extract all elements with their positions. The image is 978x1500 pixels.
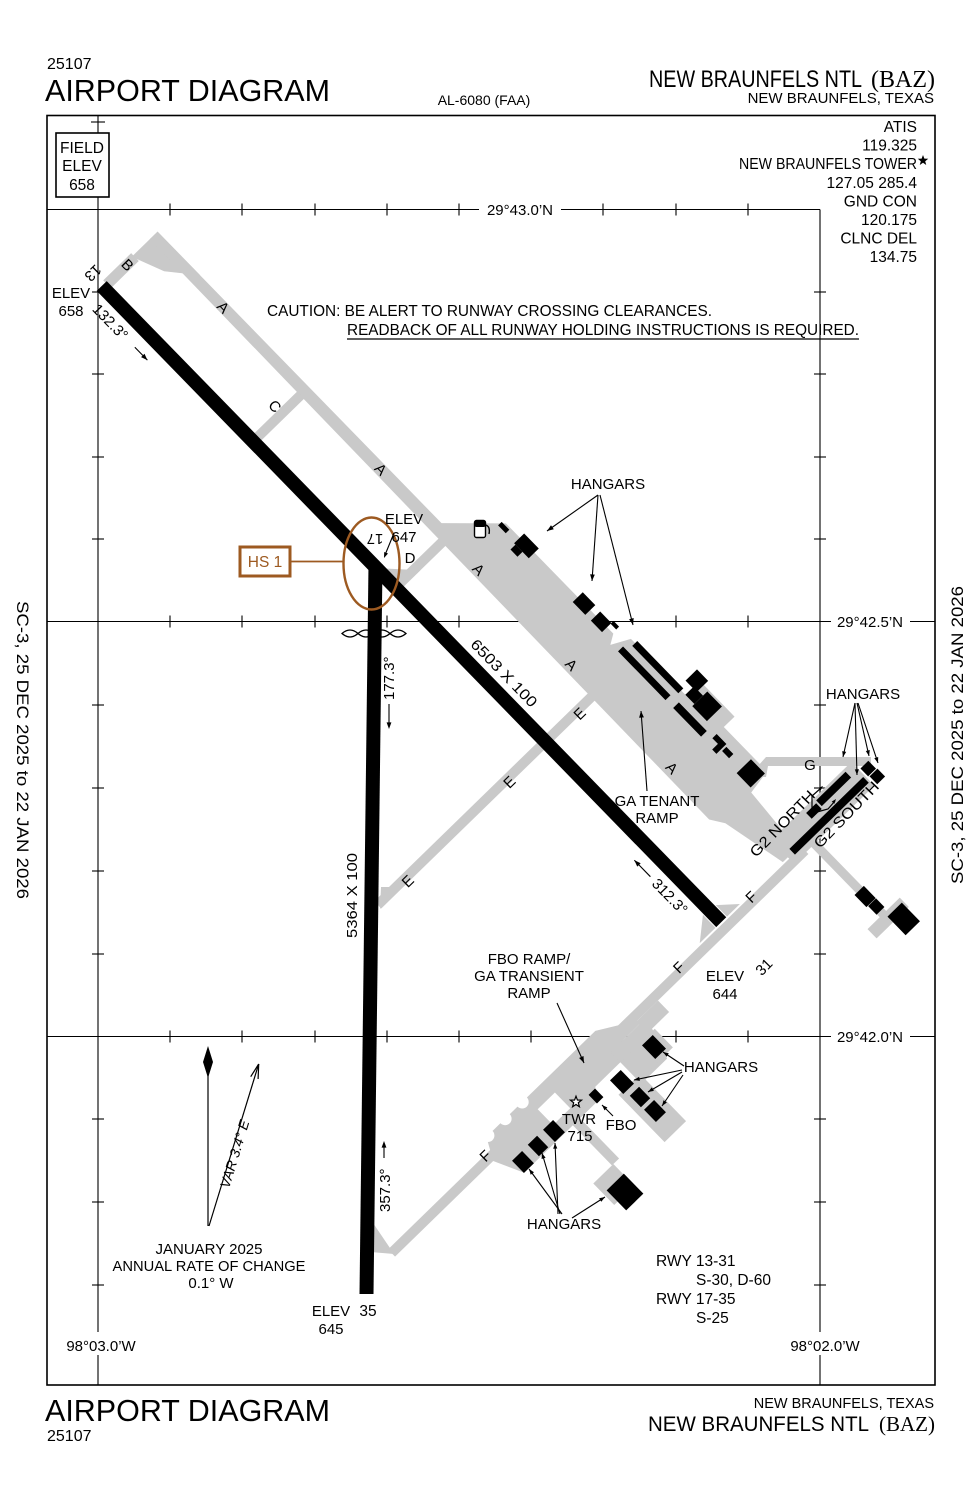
- svg-text:ELEV: ELEV: [706, 968, 744, 985]
- svg-text:HANGARS: HANGARS: [571, 476, 645, 493]
- svg-text:NEW BRAUNFELS, TEXAS: NEW BRAUNFELS, TEXAS: [748, 90, 934, 107]
- svg-text:645: 645: [318, 1321, 343, 1338]
- svg-text:25107: 25107: [47, 1428, 92, 1445]
- svg-text:TWR: TWR: [562, 1111, 596, 1128]
- svg-text:S-30, D-60: S-30, D-60: [696, 1272, 771, 1289]
- svg-text:AL-6080 (FAA): AL-6080 (FAA): [438, 92, 531, 108]
- svg-text:RAMP: RAMP: [507, 985, 550, 1002]
- svg-text:ELEV: ELEV: [312, 1303, 350, 1320]
- svg-text:AIRPORT DIAGRAM: AIRPORT DIAGRAM: [45, 1393, 330, 1428]
- svg-text:FBO: FBO: [606, 1117, 637, 1134]
- svg-text:HS 1: HS 1: [248, 554, 282, 571]
- svg-text:644: 644: [712, 986, 737, 1003]
- svg-text:NEW BRAUNFELS, TEXAS: NEW BRAUNFELS, TEXAS: [754, 1396, 934, 1412]
- svg-text:17: 17: [367, 530, 384, 547]
- svg-text:FIELD: FIELD: [60, 140, 104, 157]
- svg-text:CLNC DEL: CLNC DEL: [840, 231, 917, 248]
- svg-text:25107: 25107: [47, 56, 92, 73]
- svg-text:RAMP: RAMP: [635, 810, 678, 827]
- svg-text:HANGARS: HANGARS: [527, 1216, 601, 1233]
- svg-text:715: 715: [567, 1128, 592, 1145]
- svg-text:177.3°: 177.3°: [381, 656, 398, 700]
- svg-text:357.3°: 357.3°: [377, 1168, 394, 1212]
- svg-text:RWY 13-31: RWY 13-31: [656, 1253, 736, 1270]
- svg-text:29°42.0’N: 29°42.0’N: [837, 1029, 903, 1046]
- svg-text:S-25: S-25: [696, 1310, 729, 1327]
- svg-text:JANUARY 2025: JANUARY 2025: [155, 1241, 262, 1258]
- svg-text:98°02.0’W: 98°02.0’W: [790, 1338, 860, 1355]
- svg-text:D: D: [405, 550, 416, 567]
- svg-text:SC-3, 25 DEC 2025 to 22 JAN: SC-3, 25 DEC 2025 to 22 JAN 2026: [13, 601, 31, 899]
- svg-text:SC-3, 25 DEC 2025 to 22 JAN: SC-3, 25 DEC 2025 to 22 JAN 2026: [949, 586, 967, 884]
- svg-text:NEW BRAUNFELS TOWER: NEW BRAUNFELS TOWER: [739, 156, 917, 173]
- svg-text:134.75: 134.75: [870, 249, 917, 266]
- svg-text:RWY 17-35: RWY 17-35: [656, 1291, 736, 1308]
- svg-text:29°42.5’N: 29°42.5’N: [837, 614, 903, 631]
- svg-text:(BAZ): (BAZ): [879, 1412, 935, 1436]
- svg-text:NEW BRAUNFELS NTL: NEW BRAUNFELS NTL: [649, 66, 862, 93]
- svg-text:647: 647: [391, 529, 416, 546]
- svg-text:GA TRANSIENT: GA TRANSIENT: [474, 968, 584, 985]
- svg-text:ELEV: ELEV: [62, 158, 102, 175]
- svg-text:5364 X 100: 5364 X 100: [344, 853, 361, 938]
- svg-text:98°03.0’W: 98°03.0’W: [66, 1338, 136, 1355]
- svg-text:G: G: [804, 757, 816, 774]
- svg-text:ATIS: ATIS: [884, 119, 917, 136]
- svg-text:120.175: 120.175: [861, 212, 917, 229]
- svg-text:127.05 285.4: 127.05 285.4: [826, 175, 917, 192]
- svg-text:119.325: 119.325: [862, 138, 917, 155]
- svg-text:GA TENANT: GA TENANT: [615, 793, 700, 810]
- svg-text:NEW BRAUNFELS NTL: NEW BRAUNFELS NTL: [648, 1413, 869, 1436]
- svg-text:ANNUAL RATE OF CHANGE: ANNUAL RATE OF CHANGE: [113, 1258, 306, 1275]
- svg-text:0.1° W: 0.1° W: [188, 1275, 234, 1292]
- svg-text:29°43.0’N: 29°43.0’N: [487, 202, 553, 219]
- svg-text:ELEV: ELEV: [52, 285, 90, 302]
- svg-text:658: 658: [69, 177, 95, 194]
- svg-text:HANGARS: HANGARS: [826, 686, 900, 703]
- svg-text:HANGARS: HANGARS: [684, 1059, 758, 1076]
- svg-text:AIRPORT DIAGRAM: AIRPORT DIAGRAM: [45, 73, 330, 108]
- svg-text:CAUTION: BE ALERT TO RUNWAY CR: CAUTION: BE ALERT TO RUNWAY CROSSING CLE…: [267, 303, 712, 320]
- svg-text:READBACK OF ALL RUNWAY HOLDING: READBACK OF ALL RUNWAY HOLDING INSTRUCTI…: [347, 322, 859, 339]
- svg-text:GND CON: GND CON: [844, 193, 917, 210]
- svg-text:658: 658: [58, 303, 83, 320]
- svg-text:ELEV: ELEV: [385, 511, 423, 528]
- svg-text:FBO RAMP/: FBO RAMP/: [488, 951, 571, 968]
- svg-text:35: 35: [359, 1303, 376, 1320]
